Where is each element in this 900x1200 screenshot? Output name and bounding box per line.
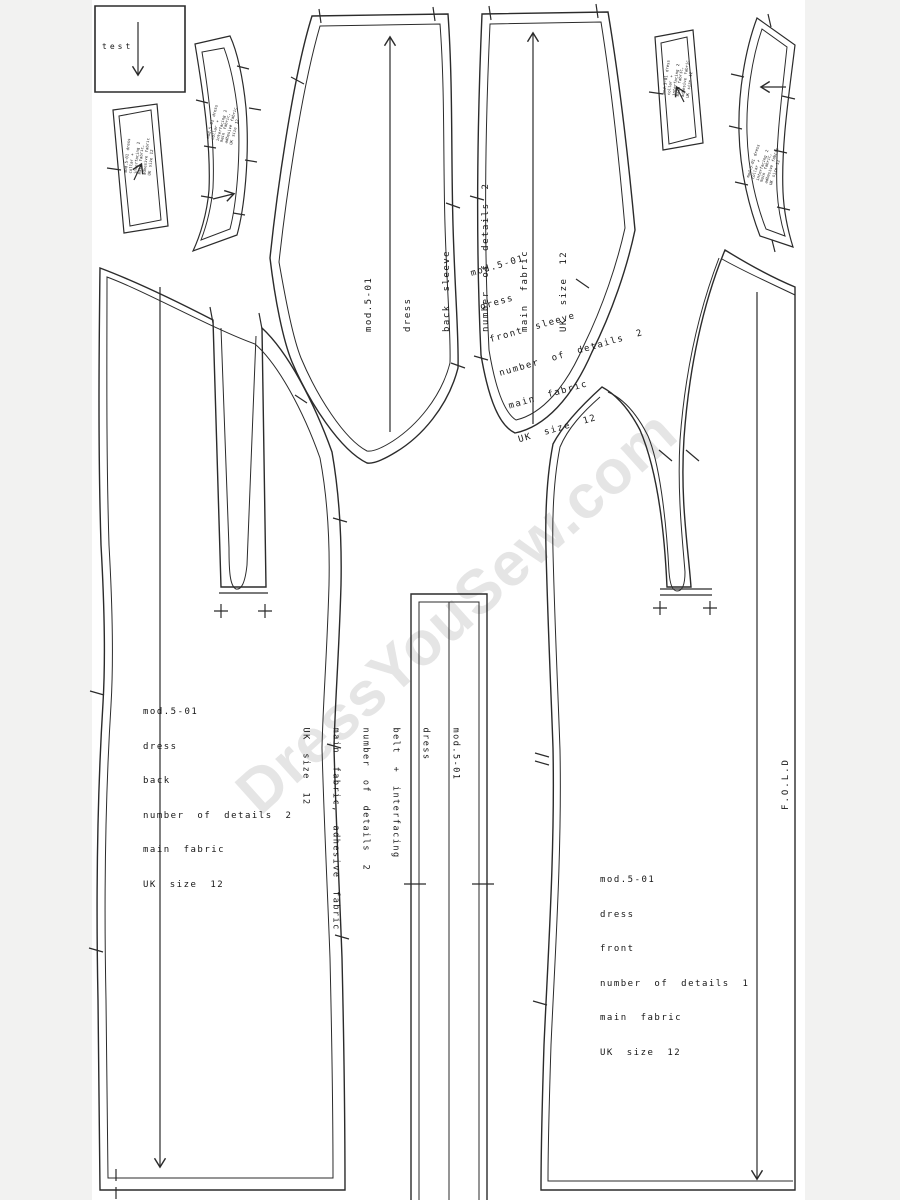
label-line: UK size 12 bbox=[143, 880, 292, 892]
label-line: back sleeve bbox=[441, 162, 454, 332]
dress-back-label: mod.5-01 dress back number of details 2 … bbox=[143, 684, 292, 914]
notch-ticks bbox=[533, 753, 549, 1005]
notch-tick bbox=[107, 168, 121, 170]
label-line: front bbox=[600, 944, 749, 956]
grain-arrow bbox=[213, 194, 233, 199]
test-label: test bbox=[102, 42, 133, 51]
dart-ticks bbox=[210, 307, 262, 329]
collar-band-right-piece bbox=[729, 14, 795, 252]
back-sleeve-label: mod.5-01 dress back sleeve number of det… bbox=[337, 162, 415, 332]
label-line: mod.5-01 bbox=[451, 728, 461, 963]
dart-base-line bbox=[660, 589, 712, 595]
label-line: back bbox=[143, 776, 292, 788]
label-line: number of details 2 bbox=[143, 811, 292, 823]
dress-front-label: mod.5-01 dress front number of details 1… bbox=[600, 852, 749, 1082]
collar-strip-right-label: mod.5-01 dress collar + interfacing 2 ma… bbox=[662, 55, 696, 99]
label-line: mod.5-01 bbox=[600, 875, 749, 887]
label-line: UK size 12 bbox=[600, 1048, 749, 1060]
dart-plus-marks bbox=[214, 604, 272, 618]
label-line: mod.5-01 bbox=[143, 707, 292, 719]
label-line: dress bbox=[421, 728, 431, 963]
label-line: main fabric bbox=[143, 845, 292, 857]
label-line: dress bbox=[600, 910, 749, 922]
neckline-seam bbox=[722, 259, 795, 295]
pattern-sheet-page: DressYouSew.com bbox=[0, 0, 900, 1200]
label-line: main fabric, adhesive fabric bbox=[331, 728, 341, 963]
seam-line bbox=[747, 29, 787, 236]
shoulder-dart bbox=[221, 328, 256, 589]
label-line: dress bbox=[402, 162, 415, 332]
label-line: UK size 12 bbox=[301, 728, 311, 963]
dart-plus-marks bbox=[653, 601, 717, 615]
collar-strip-left-label: mod.5-01 dress collar + interfacing 2 ma… bbox=[124, 133, 157, 176]
label-line: number of details 1 bbox=[600, 979, 749, 991]
label-line: mod.5-01 bbox=[363, 162, 376, 332]
label-line: main fabric bbox=[600, 1013, 749, 1025]
label-line: dress bbox=[143, 742, 292, 754]
label-line: number of details 2 bbox=[361, 728, 371, 963]
label-line: belt + interfacing bbox=[391, 728, 401, 963]
fold-label: F.O.L.D bbox=[781, 744, 793, 824]
belt-label: mod.5-01 dress belt + interfacing number… bbox=[419, 728, 481, 963]
